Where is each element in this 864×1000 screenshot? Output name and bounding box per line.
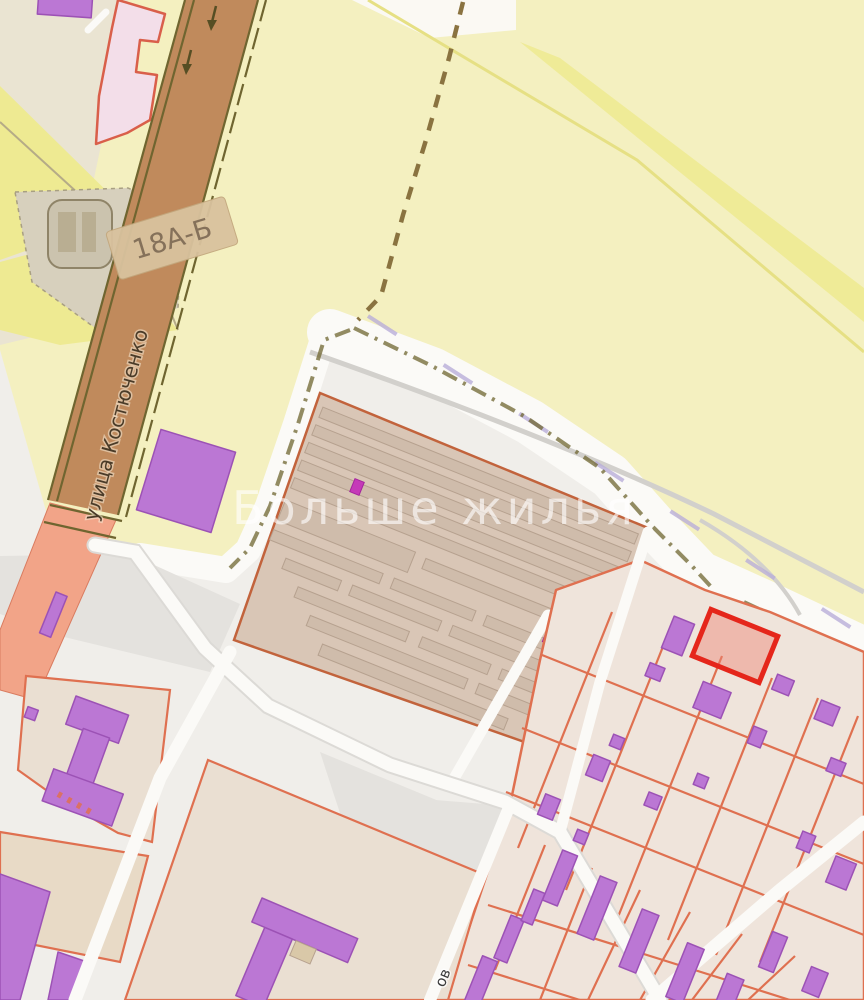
map-viewport[interactable]: 18А-Б улица Костюченко (0, 0, 864, 1000)
purple-building (37, 0, 92, 18)
watermark: Больше жилья (232, 481, 637, 535)
map-canvas[interactable]: 18А-Б улица Костюченко (0, 0, 864, 1000)
depot-building (48, 200, 112, 268)
depot-inner-structure (58, 212, 76, 252)
depot-inner-structure (82, 212, 96, 252)
